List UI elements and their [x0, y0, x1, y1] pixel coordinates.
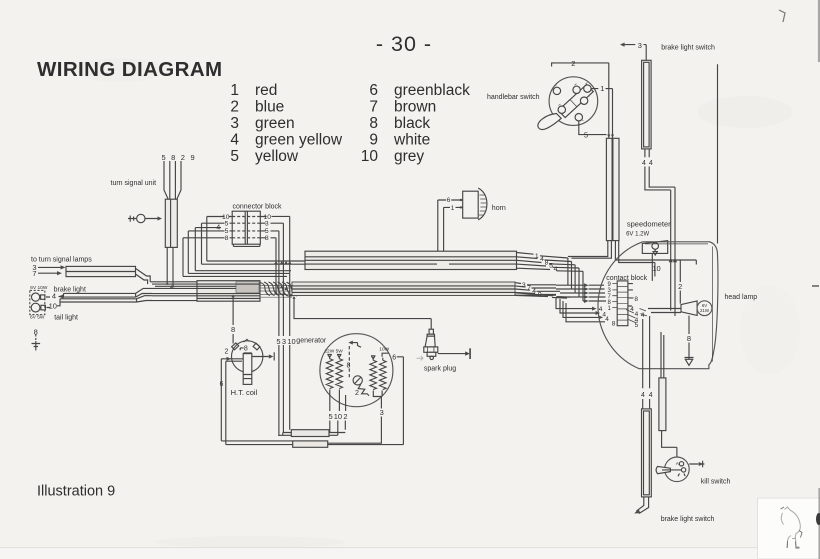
svg-text:7: 7 [32, 269, 36, 278]
svg-text:brake light: brake light [54, 287, 86, 294]
svg-text:10: 10 [652, 264, 660, 273]
svg-text:2: 2 [571, 59, 575, 68]
svg-text:8: 8 [545, 259, 549, 266]
svg-text:5: 5 [549, 263, 553, 270]
svg-text:5: 5 [584, 131, 588, 140]
svg-text:4: 4 [605, 316, 609, 323]
svg-text:6: 6 [219, 381, 223, 388]
svg-text:8: 8 [369, 115, 378, 132]
svg-text:8: 8 [634, 296, 638, 303]
svg-text:3: 3 [230, 115, 239, 132]
svg-text:8: 8 [225, 235, 229, 242]
svg-text:4: 4 [532, 288, 536, 295]
svg-text:5: 5 [635, 322, 639, 329]
svg-text:4: 4 [52, 292, 56, 301]
svg-text:8: 8 [612, 321, 616, 328]
svg-text:4: 4 [630, 306, 634, 313]
svg-text:10: 10 [287, 337, 295, 346]
svg-text:6: 6 [447, 197, 451, 204]
svg-text:6V: 6V [702, 303, 707, 308]
svg-text:8: 8 [347, 362, 351, 369]
svg-text:horn: horn [492, 205, 506, 212]
svg-text:1: 1 [535, 253, 539, 260]
svg-text:6: 6 [392, 354, 396, 361]
svg-text:2: 2 [343, 412, 347, 421]
svg-text:4: 4 [540, 256, 544, 263]
svg-text:1: 1 [600, 84, 604, 93]
svg-text:6V 10W: 6V 10W [30, 285, 48, 291]
svg-text:4: 4 [641, 312, 645, 319]
svg-text:greenblack: greenblack [394, 82, 470, 99]
svg-text:7: 7 [369, 99, 378, 116]
svg-text:red: red [255, 82, 277, 99]
svg-text:6V 5W: 6V 5W [30, 314, 45, 320]
svg-text:4: 4 [216, 222, 220, 231]
svg-text:5: 5 [230, 148, 239, 165]
svg-text:4: 4 [649, 392, 653, 399]
svg-text:9: 9 [369, 132, 378, 149]
svg-text:8: 8 [231, 325, 235, 334]
svg-text:3: 3 [380, 408, 384, 417]
svg-text:generator: generator [296, 337, 327, 344]
svg-text:8: 8 [687, 334, 691, 343]
svg-text:green yellow: green yellow [255, 132, 343, 149]
svg-text:4: 4 [641, 392, 645, 399]
svg-text:kill switch: kill switch [701, 479, 731, 486]
svg-text:speedometer: speedometer [627, 219, 671, 228]
svg-text:4: 4 [649, 160, 653, 167]
svg-text:yellow: yellow [255, 148, 299, 165]
svg-text:8: 8 [244, 345, 248, 352]
svg-text:10W: 10W [379, 346, 389, 352]
svg-text:connector block: connector block [233, 203, 283, 210]
svg-text:6V 1.2W: 6V 1.2W [626, 232, 649, 238]
svg-text:4: 4 [642, 160, 646, 167]
svg-text:head lamp: head lamp [725, 294, 758, 301]
svg-text:6: 6 [369, 82, 378, 99]
svg-text:grey: grey [394, 148, 424, 165]
svg-text:3: 3 [282, 337, 286, 346]
svg-text:2: 2 [355, 390, 359, 397]
svg-text:blue: blue [255, 99, 284, 116]
svg-text:2: 2 [678, 282, 682, 291]
svg-text:3: 3 [522, 282, 526, 289]
svg-text:8: 8 [265, 235, 269, 242]
svg-text:5 8 2 9: 5 8 2 9 [162, 153, 197, 162]
svg-text:black: black [394, 115, 430, 132]
svg-text:10: 10 [49, 301, 57, 310]
svg-text:H.T. coil: H.T. coil [231, 388, 258, 397]
svg-text:10: 10 [361, 148, 379, 165]
svg-text:A: A [676, 461, 679, 466]
svg-text:7: 7 [527, 285, 531, 292]
svg-text:brake light switch: brake light switch [661, 44, 715, 51]
svg-text:brake light switch: brake light switch [661, 516, 715, 523]
svg-text:handlebar switch: handlebar switch [487, 94, 540, 101]
svg-text:9: 9 [538, 291, 542, 298]
svg-text:5: 5 [225, 220, 229, 227]
svg-text:5: 5 [276, 337, 280, 346]
svg-text:to turn signal lamps: to turn signal lamps [31, 256, 92, 263]
svg-text:WIRING DIAGRAM: WIRING DIAGRAM [37, 58, 223, 81]
svg-text:1: 1 [230, 82, 239, 99]
svg-text:contact block: contact block [606, 275, 647, 282]
svg-text:2: 2 [230, 99, 239, 116]
svg-text:10: 10 [334, 412, 342, 421]
svg-text:4: 4 [554, 266, 558, 273]
svg-text:8: 8 [34, 327, 38, 336]
svg-text:3: 3 [638, 41, 642, 50]
svg-text:tail light: tail light [54, 315, 78, 322]
svg-text:turn signal unit: turn signal unit [111, 180, 157, 187]
svg-text:brown: brown [394, 99, 436, 116]
svg-text:- 30 -: - 30 - [376, 32, 432, 56]
svg-text:4: 4 [230, 132, 239, 149]
svg-text:green: green [255, 115, 295, 132]
svg-text:spark plug: spark plug [424, 366, 456, 373]
svg-text:3: 3 [265, 221, 269, 228]
svg-text:2: 2 [224, 348, 228, 355]
svg-text:white: white [393, 132, 430, 149]
svg-text:21W: 21W [700, 308, 710, 313]
svg-text:1: 1 [451, 205, 455, 212]
svg-text:22W 5W: 22W 5W [324, 348, 343, 354]
svg-text:Illustration 9: Illustration 9 [37, 484, 115, 500]
svg-text:5: 5 [329, 412, 333, 421]
